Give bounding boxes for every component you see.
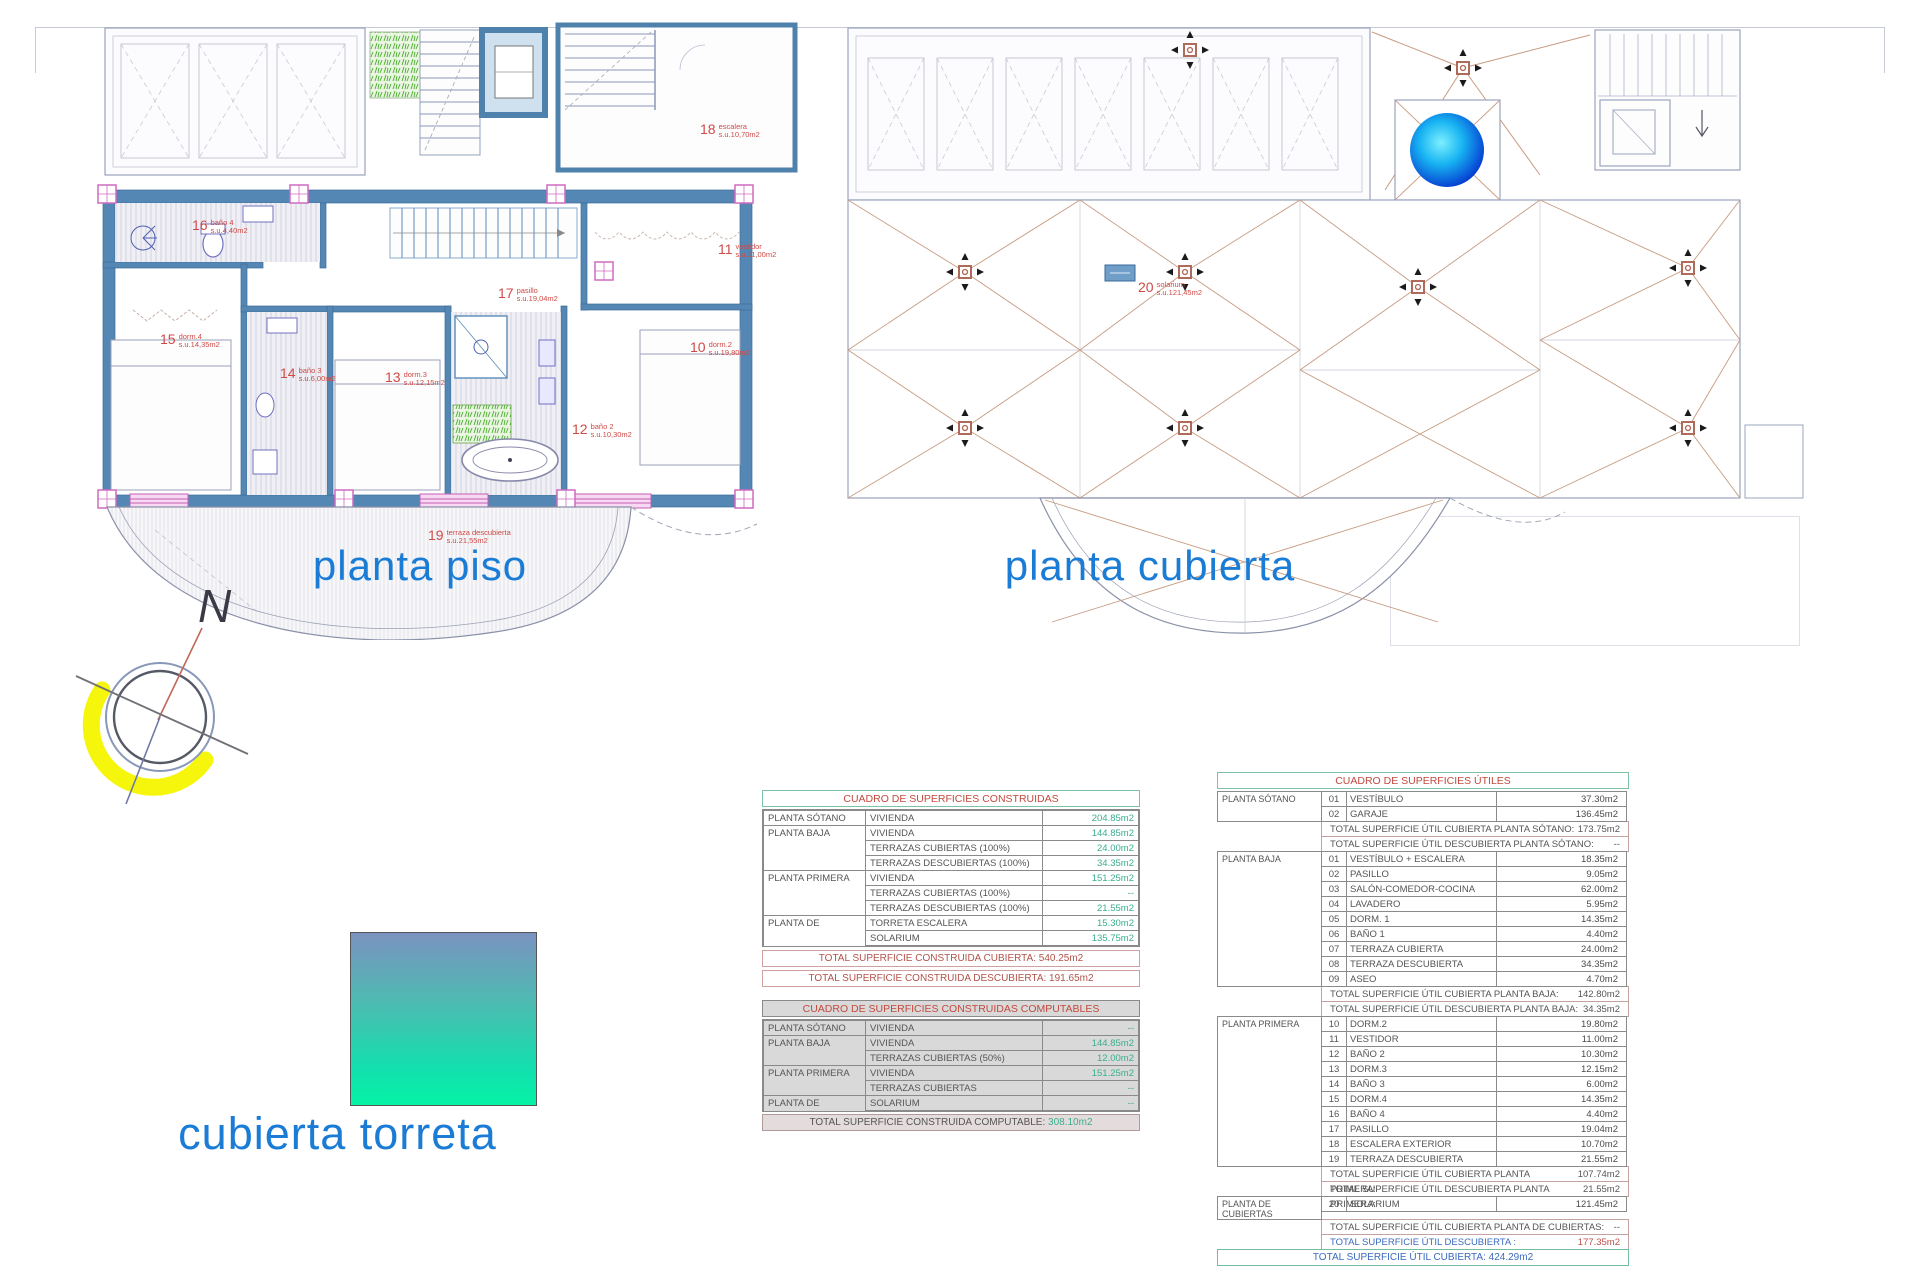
table-rows: PLANTA SÓTANO VIVIENDA 204.85m2 PLANTA B… (762, 809, 1140, 947)
table-title: CUADRO DE SUPERFICIES CONSTRUIDAS (762, 790, 1140, 807)
table-superficies-construidas: CUADRO DE SUPERFICIES CONSTRUIDAS PLANTA… (762, 790, 1140, 987)
section-baja: PLANTA BAJA 01VESTÍBULO + ESCALERA18.35m… (1217, 851, 1629, 987)
table-row: PLANTA BAJA VIVIENDA 144.85m2 (763, 825, 1139, 841)
total-row: TOTAL SUPERFICIE ÚTIL CUBIERTA PLANTA SÓ… (1321, 821, 1629, 837)
room-row: 07TERRAZA CUBIERTA24.00m2 (1321, 941, 1629, 957)
total-row: TOTAL SUPERFICIE ÚTIL CUBIERTA PLANTA PR… (1321, 1166, 1629, 1182)
room-label-20: 20solariums.u.121,45m2 (1138, 280, 1202, 296)
table-totals: TOTAL SUPERFICIE CONSTRUIDA CUBIERTA: 54… (762, 950, 1140, 987)
table-row: SOLARIUM 135.75m2 (763, 930, 1139, 946)
roof-pergola-band (848, 28, 1370, 200)
room-row: 03SALÓN-COMEDOR-COCINA62.00m2 (1321, 881, 1629, 897)
table-superficies-computables: CUADRO DE SUPERFICIES CONSTRUIDAS COMPUT… (762, 1000, 1140, 1131)
total-row: TOTAL SUPERFICIE CONSTRUIDA COMPUTABLE: … (762, 1114, 1140, 1131)
room-label-10: 10dorm.2s.u.19,80m2 (690, 340, 750, 356)
closet-scallops (595, 232, 739, 239)
total-row: TOTAL SUPERFICIE ÚTIL CUBIERTA PLANTA BA… (1321, 986, 1629, 1002)
table-row: TERRAZAS CUBIERTAS (100%) -- (763, 885, 1139, 901)
table-superficies-utiles: CUADRO DE SUPERFICIES ÚTILES PLANTA SÓTA… (1217, 772, 1629, 1266)
north-letter: N (198, 580, 232, 632)
furniture-beds (111, 330, 740, 490)
table-row: TERRAZAS CUBIERTAS -- (763, 1080, 1139, 1096)
room-label-12: 12baño 2s.u.10,30m2 (572, 422, 632, 438)
room-row: 04LAVADERO5.95m2 (1321, 896, 1629, 912)
room-row: 17PASILLO19.04m2 (1321, 1121, 1629, 1137)
table-row: TERRAZAS DESCUBIERTAS (100%) 21.55m2 (763, 900, 1139, 916)
table-row: TERRAZAS CUBIERTAS (100%) 24.00m2 (763, 840, 1139, 856)
bathroom-14 (247, 312, 327, 495)
total-row: TOTAL SUPERFICIE ÚTIL CUBIERTA PLANTA DE… (1321, 1219, 1629, 1235)
room-row: 01VESTÍBULO + ESCALERA18.35m2 (1321, 851, 1629, 867)
room-row: 14BAÑO 36.00m2 (1321, 1076, 1629, 1092)
total-row: TOTAL SUPERFICIE ÚTIL DESCUBIERTA PLANTA… (1321, 836, 1629, 852)
room-label-11: 11vestidors.u.11,00m2 (718, 242, 776, 258)
room-row: 13DORM.312.15m2 (1321, 1061, 1629, 1077)
skylight-dome-icon (1410, 113, 1484, 187)
table-title: CUADRO DE SUPERFICIES CONSTRUIDAS COMPUT… (762, 1000, 1140, 1017)
room-label-13: 13dorm.3s.u.12,15m2 (385, 370, 445, 386)
table-title: CUADRO DE SUPERFICIES ÚTILES (1217, 772, 1629, 789)
room-row: 16BAÑO 44.40m2 (1321, 1106, 1629, 1122)
room-row: 02GARAJE136.45m2 (1321, 806, 1629, 822)
sheet-left-tick (35, 27, 36, 73)
room-label-14: 14baño 3s.u.6,00m2 (280, 366, 336, 382)
table-row: PLANTA SÓTANO VIVIENDA -- (763, 1020, 1139, 1036)
room-row: 11VESTIDOR11.00m2 (1321, 1031, 1629, 1047)
drawing-sheet: { "titles": { "left_plan": "planta piso"… (0, 0, 1920, 1280)
torreta-roof-swatch (350, 932, 537, 1106)
total-row: TOTAL SUPERFICIE ÚTIL DESCUBIERTA PLANTA… (1321, 1181, 1629, 1197)
table-row: PLANTA DE CUBIERTAS SOLARIUM -- (763, 1095, 1139, 1111)
room-row: 12BAÑO 210.30m2 (1321, 1046, 1629, 1062)
total-row: TOTAL SUPERFICIE ÚTIL DESCUBIERTA :177.3… (1321, 1234, 1629, 1250)
title-planta-piso: planta piso (265, 542, 575, 590)
total-row: TOTAL SUPERFICIE CONSTRUIDA DESCUBIERTA:… (762, 970, 1140, 987)
table-row: TERRAZAS CUBIERTAS (50%) 12.00m2 (763, 1050, 1139, 1066)
room-label-16: 16baño 4s.u.4,40m2 (192, 218, 248, 234)
bathroom-12 (451, 312, 561, 495)
table-row: PLANTA DE CUBIERTAS TORRETA ESCALERA 15.… (763, 915, 1139, 931)
room-row: 18ESCALERA EXTERIOR10.70m2 (1321, 1136, 1629, 1152)
table-row: TERRAZAS DESCUBIERTAS (100%) 34.35m2 (763, 855, 1139, 871)
roof-annex (1745, 425, 1803, 498)
room-row: 20SOLARIUM121.45m2 (1321, 1196, 1629, 1212)
room-label-15: 15dorm.4s.u.14,35m2 (160, 332, 220, 348)
corridor-stairs (390, 208, 577, 258)
title-planta-cubierta: planta cubierta (970, 542, 1330, 590)
north-compass: N (40, 570, 270, 830)
room-row: 01VESTÍBULO37.30m2 (1321, 791, 1629, 807)
sheet-right-tick (1884, 27, 1885, 73)
table-row: PLANTA BAJA VIVIENDA 144.85m2 (763, 1035, 1139, 1051)
room-row: 19TERRAZA DESCUBIERTA21.55m2 (1321, 1151, 1629, 1167)
room-row: 15DORM.414.35m2 (1321, 1091, 1629, 1107)
roof-stair-tower (1595, 30, 1740, 170)
table-row: PLANTA SÓTANO VIVIENDA 204.85m2 (763, 810, 1139, 826)
room-label-17: 17pasillos.u.19,04m2 (498, 286, 558, 302)
pergola-band (105, 28, 365, 175)
grand-total-row: TOTAL SUPERFICIE ÚTIL CUBIERTA: 424.29m2 (1217, 1249, 1629, 1266)
room-row: 06BAÑO 14.40m2 (1321, 926, 1629, 942)
room-label-19: 19terraza descubiertas.u.21,55m2 (428, 528, 511, 544)
section-cubiertas: PLANTA DE CUBIERTAS 20SOLARIUM121.45m2 (1217, 1196, 1629, 1220)
room-row: 09ASEO4.70m2 (1321, 971, 1629, 987)
room-row: 10DORM.219.80m2 (1321, 1016, 1629, 1032)
room-row: 05DORM. 114.35m2 (1321, 911, 1629, 927)
upper-stair-flight (420, 30, 480, 155)
total-row: TOTAL SUPERFICIE ÚTIL DESCUBIERTA PLANTA… (1321, 1001, 1629, 1017)
section-sotano: PLANTA SÓTANO 01VESTÍBULO37.30m202GARAJE… (1217, 791, 1629, 822)
exterior-stair-tower (558, 25, 795, 170)
table-row: PLANTA PRIMERA VIVIENDA 151.25m2 (763, 1065, 1139, 1081)
room-label-18: 18escaleras.u.10,70m2 (700, 122, 760, 138)
title-cubierta-torreta: cubierta torreta (160, 1108, 515, 1160)
room-row: 02PASILLO9.05m2 (1321, 866, 1629, 882)
section-primera: PLANTA PRIMERA 10DORM.219.80m211VESTIDOR… (1217, 1016, 1629, 1167)
table-rows: PLANTA SÓTANO VIVIENDA -- PLANTA BAJA VI… (762, 1019, 1140, 1112)
total-row: TOTAL SUPERFICIE CONSTRUIDA CUBIERTA: 54… (762, 950, 1140, 967)
roof-body (848, 200, 1740, 498)
elevator (482, 30, 545, 115)
room-row: 08TERRAZA DESCUBIERTA34.35m2 (1321, 956, 1629, 972)
door-chevrons (133, 310, 217, 321)
table-row: PLANTA PRIMERA VIVIENDA 151.25m2 (763, 870, 1139, 886)
